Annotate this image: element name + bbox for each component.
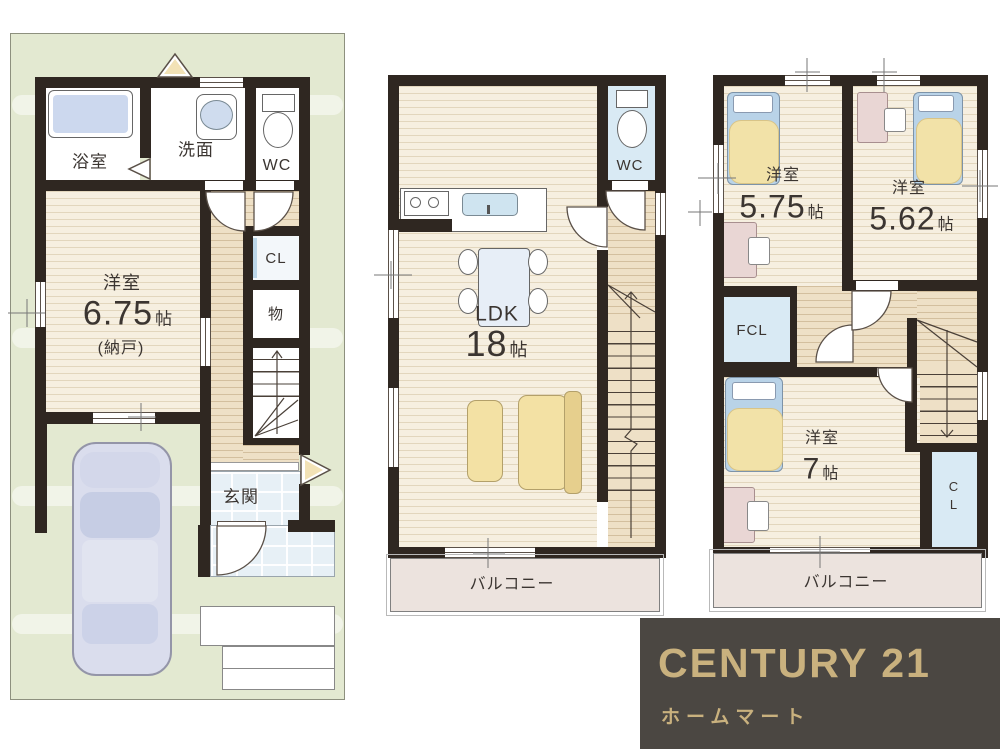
balcony-label-3f: バルコニー: [804, 574, 889, 592]
window: [655, 193, 666, 235]
size-number: 18: [465, 324, 507, 364]
wall: [790, 297, 797, 362]
wall: [905, 443, 988, 452]
stairs-top-3f: [917, 291, 977, 318]
stairs-1f-winder: [253, 398, 299, 438]
storage-label: 物: [268, 307, 284, 324]
size-number: 5.75: [739, 189, 805, 224]
door-opening: [856, 281, 898, 290]
size-number: 6.75: [83, 295, 153, 332]
kitchen-sink: [462, 193, 518, 216]
window: [93, 412, 155, 424]
size-number: 5.62: [869, 201, 935, 236]
window: [785, 75, 830, 86]
car-hood: [80, 452, 160, 488]
dining-chair: [528, 249, 548, 275]
door-opening: [597, 502, 608, 543]
wall: [35, 412, 47, 533]
sink-basin: [200, 100, 233, 130]
wall: [198, 525, 210, 577]
room-label-bedroom1-3f: 洋室: [766, 167, 800, 185]
entrance-door-leaf: [217, 521, 266, 529]
wall: [905, 367, 917, 452]
room-size-bedroom1-3f: 5.75帖: [739, 189, 824, 224]
stairs-3f: [917, 363, 977, 443]
door-opening: [256, 181, 294, 190]
room-size-bedroom3-3f: 7帖: [803, 453, 840, 486]
size-unit: 帖: [510, 341, 529, 361]
wall: [920, 452, 932, 547]
balcony-sliding-door: [445, 547, 535, 558]
sliding-door: [200, 318, 211, 366]
closet-sliding-door: [253, 238, 257, 278]
toilet-icon-2f: [616, 90, 648, 108]
wall: [597, 86, 608, 191]
logo-brand-text: CENTURY 21: [658, 640, 931, 687]
room-size-bedroom-1f: 6.75帖: [83, 295, 173, 332]
toilet-icon-1f: [262, 94, 295, 112]
logo-subtitle-text: ホームマート: [661, 702, 810, 729]
wall: [655, 75, 666, 558]
door-opening: [877, 368, 912, 376]
window: [877, 75, 920, 86]
floor-plan-canvas: 浴室 洗面 WC 洋室 6.75帖 (納戸) CL 物 玄関 WC LDK 18…: [0, 0, 1000, 749]
bed-pillow: [733, 95, 773, 113]
stairs-3f-winder: [917, 318, 977, 363]
size-unit: 帖: [938, 216, 955, 234]
toilet-bowl-1f: [263, 112, 293, 148]
wall: [35, 77, 310, 88]
desk-chair: [884, 108, 906, 132]
room-label-bath: 浴室: [72, 154, 108, 173]
wall: [140, 88, 151, 158]
desk-chair: [748, 237, 770, 265]
room-size-ldk: 18帖: [465, 324, 528, 364]
room-label-bedroom3-3f: 洋室: [805, 430, 839, 448]
balcony-label-2f: バルコニー: [470, 576, 555, 594]
window: [977, 150, 988, 218]
closet-label-cl-1f: CL: [265, 251, 286, 268]
window: [977, 372, 988, 420]
stove-burner: [410, 197, 421, 208]
hallway-floor-2f: [608, 191, 655, 285]
room-label-wc-2f: WC: [617, 158, 644, 175]
outdoor-step-line: [222, 668, 335, 669]
kitchen-faucet: [487, 205, 490, 214]
wall: [35, 77, 46, 424]
bed-pillow: [732, 382, 776, 400]
car-roof: [82, 540, 158, 602]
car-rear-window: [82, 604, 158, 644]
size-unit: 帖: [808, 204, 825, 222]
closet-label-cl-3f: C: [949, 480, 959, 494]
room-label-washroom: 洗面: [178, 142, 214, 161]
sofa-icon: [518, 395, 568, 490]
sofa-backrest: [564, 391, 582, 494]
room-note-storage: (納戸): [98, 340, 145, 358]
dining-chair: [458, 249, 478, 275]
window: [200, 77, 243, 88]
hallway-floor-3f: [797, 286, 917, 372]
wall: [713, 362, 797, 377]
sofa-icon: [467, 400, 503, 482]
window: [388, 388, 399, 467]
door-opening: [612, 181, 648, 190]
size-unit: 帖: [822, 466, 839, 484]
wall: [842, 86, 853, 291]
dining-chair: [528, 288, 548, 314]
door-opening: [205, 181, 243, 190]
room-label-wc-1f: WC: [263, 157, 292, 175]
bed-blanket: [727, 408, 783, 471]
stairs-1f: [253, 348, 299, 398]
entrance-step: [205, 462, 299, 471]
bed-blanket: [916, 118, 962, 184]
century21-logo: CENTURY 21 ホームマート: [640, 618, 1000, 749]
closet-label-fcl: FCL: [736, 323, 767, 340]
wall: [713, 75, 988, 86]
outdoor-steps: [200, 606, 335, 646]
size-unit: 帖: [155, 310, 173, 329]
window: [388, 230, 399, 318]
stairs-2f: [608, 320, 655, 500]
stove-burner: [428, 197, 439, 208]
wall: [245, 88, 256, 180]
bed-pillow: [918, 95, 954, 112]
bathtub-water: [53, 95, 128, 133]
hallway-floor-1f: [211, 233, 243, 470]
door-opening: [597, 207, 608, 250]
toilet-bowl-2f: [617, 110, 647, 148]
room-label-bedroom2-3f: 洋室: [892, 180, 926, 198]
wall: [713, 286, 797, 297]
wall: [907, 318, 917, 367]
wall: [399, 219, 452, 232]
car-windshield: [80, 492, 160, 538]
room-label-entrance: 玄関: [223, 489, 259, 508]
wall: [388, 75, 666, 86]
window: [35, 282, 46, 327]
desk-chair: [747, 501, 769, 531]
room-label-bedroom-1f: 洋室: [103, 274, 141, 294]
wall: [977, 75, 988, 558]
room-size-bedroom2-3f: 5.62帖: [869, 201, 954, 236]
hallway-floor-2f: [608, 500, 655, 547]
porch-tile: [210, 525, 335, 577]
closet-label-cl-3f: L: [950, 498, 958, 512]
window: [713, 145, 724, 213]
stairs-2f-winder: [608, 285, 655, 320]
wall: [288, 520, 335, 532]
room-label-ldk: LDK: [475, 302, 519, 325]
wall: [299, 77, 310, 455]
size-number: 7: [803, 453, 821, 486]
